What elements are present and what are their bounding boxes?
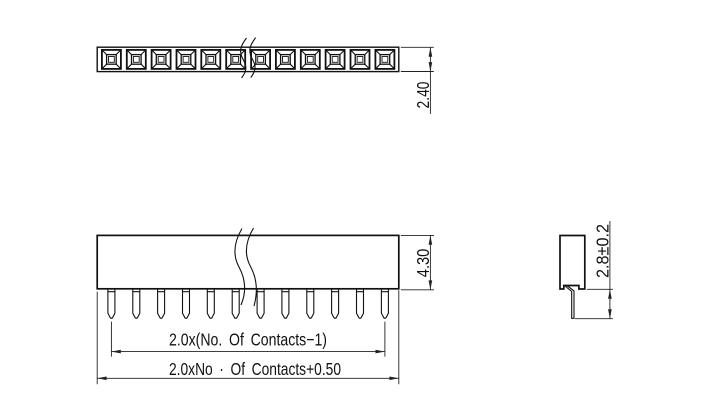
svg-text:2.0x(No. Of Contacts−1): 2.0x(No. Of Contacts−1) — [169, 329, 327, 349]
svg-text:2.0xNo · Of Contacts+0.50: 2.0xNo · Of Contacts+0.50 — [169, 359, 341, 379]
svg-text:2.40: 2.40 — [413, 81, 433, 108]
svg-text:2.8±0.2: 2.8±0.2 — [592, 224, 612, 278]
svg-text:4.30: 4.30 — [413, 248, 433, 277]
